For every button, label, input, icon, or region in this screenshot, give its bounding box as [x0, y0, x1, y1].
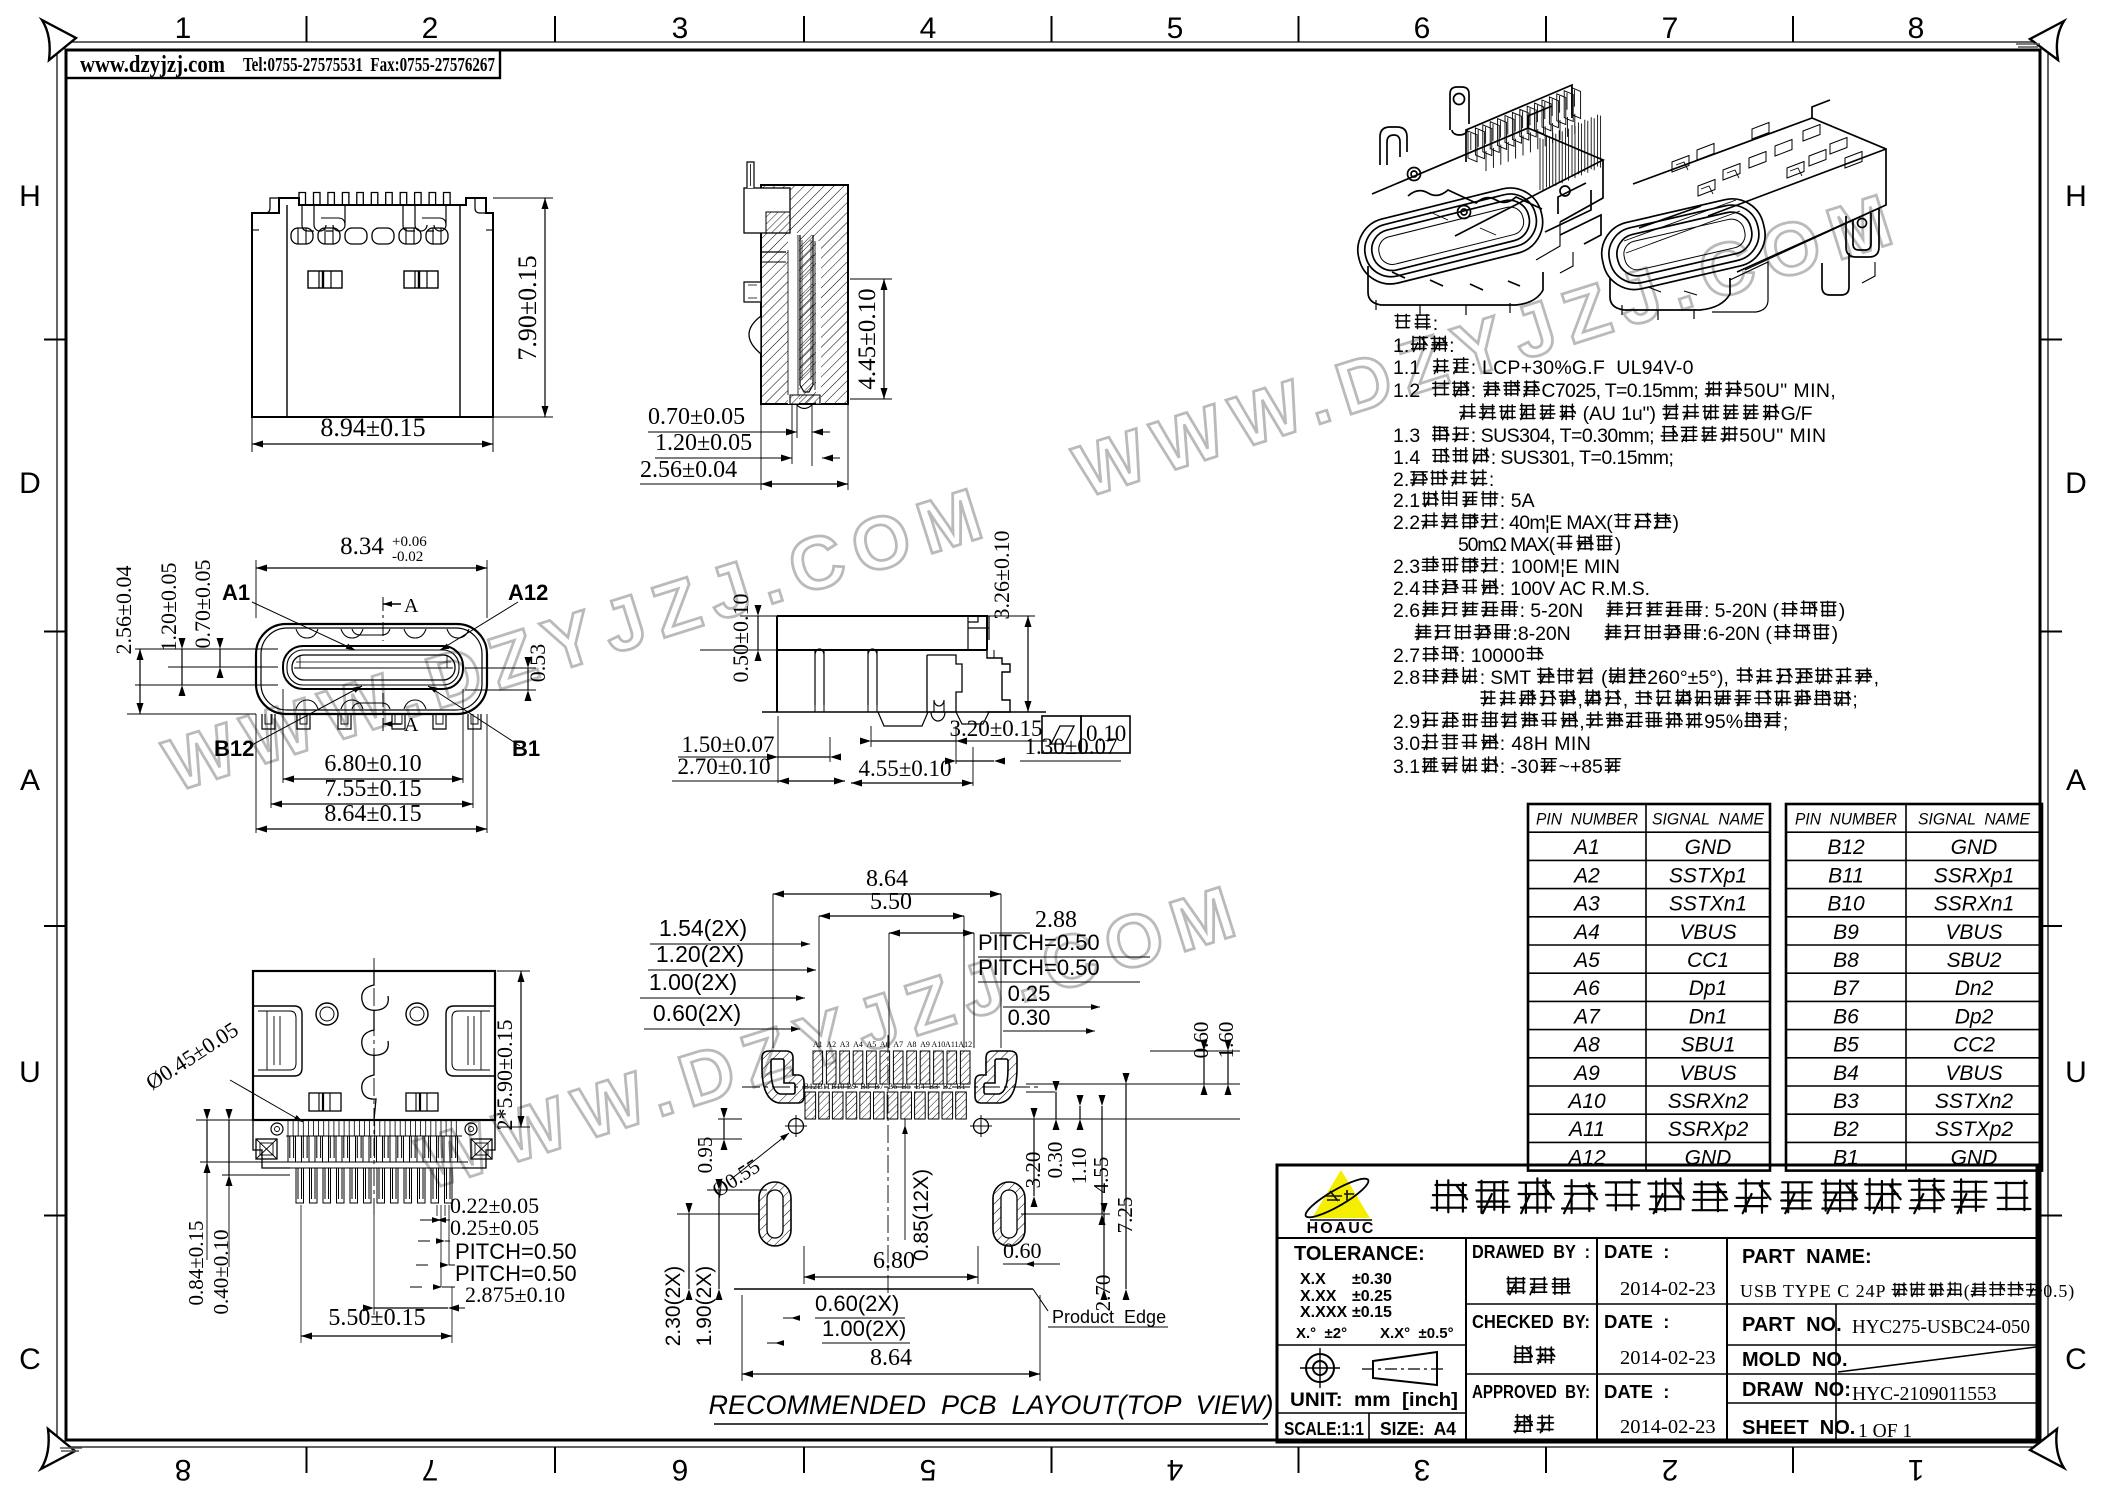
svg-text:B9: B9 [847, 1082, 856, 1091]
svg-text:0.30: 0.30 [1043, 1142, 1067, 1179]
svg-text:B12: B12 [1827, 836, 1865, 859]
svg-text:: SMT: : SMT [1480, 667, 1536, 689]
svg-text:1: 1 [1908, 1453, 1925, 1486]
svg-text:0.60(2X): 0.60(2X) [653, 1000, 741, 1026]
svg-text:1.20±0.05: 1.20±0.05 [156, 562, 181, 651]
svg-text:HYC-2109011553: HYC-2109011553 [1852, 1384, 1996, 1405]
svg-text:D: D [19, 467, 41, 500]
svg-text:B12: B12 [804, 1082, 817, 1091]
svg-text:0.30: 0.30 [1008, 1005, 1051, 1030]
svg-text:MOLD NO.: MOLD NO. [1742, 1349, 1848, 1371]
svg-text:B5: B5 [1833, 1034, 1859, 1057]
svg-text:8.34: 8.34 [340, 533, 384, 560]
svg-text:SHEET NO.: SHEET NO. [1742, 1417, 1855, 1439]
svg-text:(: ( [1596, 667, 1608, 689]
svg-text:DATE :: DATE : [1604, 1381, 1669, 1402]
svg-text:2014-02-23: 2014-02-23 [1620, 1347, 1716, 1369]
svg-text:B2: B2 [943, 1082, 952, 1091]
svg-text:B4: B4 [1833, 1062, 1859, 1085]
svg-text:): ) [1832, 623, 1839, 645]
svg-text:A1: A1 [222, 580, 250, 605]
svg-text:+0.06: +0.06 [392, 534, 427, 550]
svg-text:A9: A9 [1572, 1062, 1600, 1085]
svg-text:CC1: CC1 [1687, 949, 1729, 972]
svg-text:2.8: 2.8 [1393, 667, 1420, 689]
svg-text:3.0: 3.0 [1393, 733, 1420, 755]
svg-text::: : [1489, 469, 1494, 491]
svg-text:6: 6 [1414, 12, 1431, 45]
svg-text:2.875±0.10: 2.875±0.10 [465, 1282, 565, 1307]
svg-text:B8: B8 [860, 1082, 869, 1091]
svg-text:B6: B6 [1833, 1005, 1859, 1028]
svg-text:2.70±0.10: 2.70±0.10 [677, 754, 770, 779]
svg-text:50U" MIN: 50U" MIN [1739, 425, 1826, 447]
svg-text:A5: A5 [1572, 949, 1600, 972]
svg-text:7: 7 [1662, 12, 1679, 45]
svg-text:: 5-20N (: : 5-20N ( [1704, 600, 1780, 622]
svg-text:2*5.90±0.15: 2*5.90±0.15 [492, 1019, 517, 1130]
svg-text:SIGNAL NAME: SIGNAL NAME [1652, 809, 1765, 828]
svg-text:(AU 1u"): (AU 1u") [1577, 403, 1661, 425]
svg-text:7.55±0.15: 7.55±0.15 [324, 776, 421, 802]
svg-text:VBUS: VBUS [1945, 1062, 2002, 1085]
svg-text:1.: 1. [1393, 335, 1409, 357]
svg-text:A11: A11 [945, 1040, 958, 1049]
svg-text:TOLERANCE:: TOLERANCE: [1294, 1243, 1425, 1265]
svg-text:6.80: 6.80 [873, 1248, 915, 1274]
svg-text:4.55±0.10: 4.55±0.10 [858, 756, 951, 781]
svg-text:A4: A4 [1572, 921, 1600, 944]
svg-text:A10: A10 [932, 1040, 946, 1049]
svg-text:0.5): 0.5) [2043, 1281, 2074, 1302]
svg-text:B7: B7 [1833, 977, 1860, 1000]
svg-text:CHECKED BY:: CHECKED BY: [1472, 1311, 1590, 1332]
svg-text:,: , [1874, 667, 1879, 689]
svg-text:): ) [1839, 600, 1846, 622]
svg-text:8.64: 8.64 [870, 1345, 912, 1371]
svg-text:3: 3 [672, 12, 689, 45]
svg-text:A1: A1 [1572, 836, 1600, 859]
svg-text:VBUS: VBUS [1679, 921, 1736, 944]
svg-text:HOAUC: HOAUC [1307, 1220, 1376, 1237]
svg-text:DRAWED BY :: DRAWED BY : [1472, 1241, 1590, 1262]
svg-text:SSRXp1: SSRXp1 [1934, 864, 2015, 887]
svg-text:SBU1: SBU1 [1681, 1034, 1736, 1057]
svg-text:2014-02-23: 2014-02-23 [1620, 1416, 1716, 1438]
svg-text:PIN NUMBER: PIN NUMBER [1536, 809, 1638, 828]
svg-text:1.20±0.05: 1.20±0.05 [655, 430, 752, 456]
svg-text:4.45±0.10: 4.45±0.10 [854, 288, 881, 389]
svg-text:Dp1: Dp1 [1689, 977, 1728, 1000]
svg-text:3: 3 [1414, 1453, 1431, 1486]
svg-text:2.30(2X): 2.30(2X) [662, 1266, 685, 1347]
svg-text:5: 5 [920, 1453, 937, 1486]
svg-text:2.56±0.04: 2.56±0.04 [640, 457, 737, 483]
svg-text:1.54(2X): 1.54(2X) [659, 915, 747, 941]
svg-text:CC2: CC2 [1953, 1034, 1995, 1057]
svg-text:A7: A7 [893, 1040, 903, 1049]
svg-text:B8: B8 [1833, 949, 1859, 972]
svg-text:UNIT: mm [inch]: UNIT: mm [inch] [1290, 1390, 1458, 1411]
svg-text:PART NO.: PART NO. [1742, 1314, 1842, 1336]
svg-text:Tel:0755-27575531 Fax:0755-27: Tel:0755-27575531 Fax:0755-27576267 [243, 55, 495, 76]
svg-text:2.1: 2.1 [1393, 490, 1420, 512]
svg-text::: : [1433, 313, 1438, 335]
svg-text:A10: A10 [1566, 1090, 1606, 1113]
svg-text:): ) [1615, 534, 1622, 556]
svg-text:A8: A8 [907, 1040, 917, 1049]
svg-text:GND: GND [1951, 836, 1998, 859]
svg-text:U: U [2065, 1056, 2087, 1089]
svg-text:0.95: 0.95 [693, 1137, 717, 1174]
svg-text:1: 1 [175, 12, 192, 45]
svg-text:Dn1: Dn1 [1689, 1005, 1728, 1028]
svg-text:: SUS304, T=0.30mm;: : SUS304, T=0.30mm; [1471, 425, 1660, 447]
svg-text:A9: A9 [920, 1040, 930, 1049]
svg-text:,: , [1578, 689, 1583, 711]
svg-text:SSRXp2: SSRXp2 [1668, 1118, 1749, 1141]
svg-text:,: , [1579, 711, 1584, 733]
svg-text:B9: B9 [1833, 921, 1859, 944]
svg-text:1.3: 1.3 [1393, 425, 1431, 447]
svg-text:H: H [2065, 180, 2087, 213]
svg-text:D: D [2065, 467, 2087, 500]
svg-text:DRAW NO:: DRAW NO: [1742, 1379, 1851, 1401]
svg-text:A8: A8 [1572, 1034, 1600, 1057]
svg-text:SCALE:1:1: SCALE:1:1 [1284, 1419, 1364, 1439]
svg-text:X.X: X.X [1300, 1271, 1326, 1288]
svg-text:H: H [19, 180, 41, 213]
svg-text:4: 4 [920, 12, 937, 45]
svg-text:0.70±0.05: 0.70±0.05 [648, 404, 745, 430]
svg-text:C: C [19, 1343, 41, 1376]
svg-text:A7: A7 [1572, 1005, 1601, 1028]
svg-text:G/F: G/F [1781, 403, 1813, 425]
svg-text:5: 5 [1167, 12, 1184, 45]
svg-text:SSTXp1: SSTXp1 [1669, 864, 1747, 887]
svg-text:0.60: 0.60 [1003, 1238, 1042, 1263]
svg-text:: 100V AC R.M.S.: : 100V AC R.M.S. [1500, 578, 1650, 600]
svg-text:(: ( [1964, 1281, 1970, 1302]
svg-text:2.4: 2.4 [1393, 578, 1420, 600]
svg-text:: 5A: : 5A [1500, 490, 1535, 512]
svg-text:www.dzyjzj.com: www.dzyjzj.com [80, 52, 225, 78]
svg-text:3.20: 3.20 [1021, 1152, 1045, 1189]
svg-text:PITCH=0.50: PITCH=0.50 [978, 930, 1100, 955]
svg-text:B7: B7 [874, 1082, 883, 1091]
svg-text:SSTXp2: SSTXp2 [1935, 1118, 2014, 1141]
svg-text:5.50±0.15: 5.50±0.15 [328, 1305, 425, 1331]
svg-text:B11: B11 [1828, 864, 1864, 887]
svg-text:1.00(2X): 1.00(2X) [649, 969, 737, 995]
svg-text:A2: A2 [1572, 864, 1600, 887]
svg-text:RECOMMENDED PCB LAYOUT(TOP: RECOMMENDED PCB LAYOUT(TOP VIEW) [708, 1390, 1273, 1420]
svg-text:1.20(2X): 1.20(2X) [656, 941, 744, 967]
svg-text:;: ; [1783, 711, 1788, 733]
svg-text:: LCP+30%G.F UL94V-0: : LCP+30%G.F UL94V-0 [1471, 357, 1694, 379]
svg-text:DATE :: DATE : [1604, 1241, 1669, 1262]
svg-text:1.90(2X): 1.90(2X) [693, 1266, 716, 1347]
svg-text:SSTXn1: SSTXn1 [1669, 893, 1747, 916]
svg-text:A3: A3 [1572, 893, 1600, 916]
svg-text:8: 8 [175, 1453, 192, 1486]
svg-text:: -30: : -30 [1500, 756, 1539, 778]
svg-text:Dn2: Dn2 [1955, 977, 1994, 1000]
svg-text:95%: 95% [1704, 711, 1743, 733]
svg-text:SSTXn2: SSTXn2 [1935, 1090, 2014, 1113]
svg-text:B4: B4 [915, 1082, 924, 1091]
svg-text:B1: B1 [956, 1082, 965, 1091]
svg-text:SIGNAL NAME: SIGNAL NAME [1918, 809, 2031, 828]
svg-text::: : [1449, 335, 1454, 357]
svg-text:-0.02: -0.02 [392, 549, 423, 565]
svg-text:B10: B10 [831, 1082, 844, 1091]
svg-text:50mΩ MAX(: 50mΩ MAX( [1458, 534, 1556, 556]
svg-text:B10: B10 [1827, 893, 1865, 916]
svg-text:,: , [1623, 689, 1634, 711]
svg-text:Dp2: Dp2 [1955, 1005, 1994, 1028]
svg-text:2.2: 2.2 [1393, 512, 1420, 534]
svg-text::: : [1471, 380, 1482, 402]
svg-text:SSRXn1: SSRXn1 [1934, 893, 2015, 916]
svg-text:: 5-20N: : 5-20N [1520, 600, 1605, 622]
svg-text:A12: A12 [508, 580, 548, 605]
svg-text:8: 8 [1908, 12, 1925, 45]
svg-text:X.XX: X.XX [1300, 1288, 1337, 1305]
svg-text::6-20N (: :6-20N ( [1702, 623, 1772, 645]
svg-text:7.25: 7.25 [1113, 1197, 1137, 1234]
svg-text:5.50: 5.50 [870, 889, 912, 915]
svg-text:2.9: 2.9 [1393, 711, 1420, 733]
svg-text:0.84±0.15: 0.84±0.15 [184, 1220, 208, 1305]
svg-text:7: 7 [422, 1453, 439, 1486]
svg-text:B2: B2 [1833, 1118, 1859, 1141]
svg-text:B11: B11 [817, 1082, 830, 1091]
svg-text:U: U [19, 1056, 41, 1089]
svg-text:2.3: 2.3 [1393, 556, 1420, 578]
svg-text:B3: B3 [1833, 1090, 1859, 1113]
svg-text:2.: 2. [1393, 469, 1409, 491]
svg-text:2: 2 [422, 12, 439, 45]
svg-text:2.56±0.04: 2.56±0.04 [111, 565, 136, 654]
svg-text:6: 6 [672, 1453, 689, 1486]
svg-text:2014-02-23: 2014-02-23 [1620, 1278, 1716, 1300]
svg-text:A: A [404, 595, 419, 617]
svg-text:1.2: 1.2 [1393, 380, 1431, 402]
svg-text:A11: A11 [1567, 1118, 1605, 1141]
svg-text:8.94±0.15: 8.94±0.15 [320, 413, 425, 442]
svg-text:1.00(2X): 1.00(2X) [822, 1316, 906, 1341]
svg-text:A: A [20, 764, 40, 797]
svg-text:1.1: 1.1 [1393, 357, 1431, 379]
svg-text:2.6: 2.6 [1393, 600, 1420, 622]
svg-text:X.° ±2°: X.° ±2° [1296, 1325, 1347, 1342]
svg-text:: 40m¦E MAX(: : 40m¦E MAX( [1500, 512, 1614, 534]
svg-text:2.7: 2.7 [1393, 645, 1420, 667]
svg-text:C: C [2065, 1343, 2087, 1376]
svg-text:3.1: 3.1 [1393, 756, 1420, 778]
svg-text:A4: A4 [853, 1040, 863, 1049]
svg-text:260°±5°),: 260°±5°), [1647, 667, 1734, 689]
svg-text:2: 2 [1662, 1453, 1679, 1486]
svg-text:4: 4 [1167, 1453, 1184, 1486]
svg-text:A3: A3 [840, 1040, 850, 1049]
svg-text:0.50±0.10: 0.50±0.10 [728, 593, 753, 682]
svg-text:): ) [1673, 512, 1680, 534]
svg-text:X.X° ±0.5°: X.X° ±0.5° [1380, 1325, 1454, 1342]
svg-text:SSRXn2: SSRXn2 [1668, 1090, 1749, 1113]
svg-text:8.64±0.15: 8.64±0.15 [324, 801, 421, 827]
svg-text:B12: B12 [214, 736, 254, 761]
svg-text:APPROVED BY:: APPROVED BY: [1472, 1381, 1590, 1402]
svg-text:A1: A1 [813, 1040, 823, 1049]
svg-text:B3: B3 [929, 1082, 938, 1091]
svg-text::8-20N: :8-20N [1513, 623, 1603, 645]
svg-text:0.25±0.05: 0.25±0.05 [450, 1215, 539, 1240]
svg-text:PIN NUMBER: PIN NUMBER [1795, 809, 1897, 828]
svg-text:1.30±0.07: 1.30±0.07 [1024, 734, 1117, 759]
svg-text:3.26±0.10: 3.26±0.10 [989, 530, 1014, 619]
svg-text:USB TYPE C 24P: USB TYPE C 24P [1740, 1281, 1890, 1301]
svg-text:4.55: 4.55 [1089, 1157, 1113, 1194]
svg-text:VBUS: VBUS [1945, 921, 2002, 944]
svg-text:1 OF 1: 1 OF 1 [1858, 1421, 1912, 1442]
svg-text:6.80±0.10: 6.80±0.10 [324, 751, 421, 777]
svg-text:50U" MIN,: 50U" MIN, [1743, 380, 1836, 402]
svg-text:X.XXX: X.XXX [1300, 1304, 1347, 1321]
svg-text:: 100M¦E MIN: : 100M¦E MIN [1500, 556, 1620, 578]
svg-text:1.4: 1.4 [1393, 447, 1431, 469]
svg-text:A6: A6 [1572, 977, 1600, 1000]
svg-text:7.90±0.15: 7.90±0.15 [513, 255, 542, 360]
svg-text:SIZE: A4: SIZE: A4 [1380, 1419, 1456, 1439]
svg-text:0.60(2X): 0.60(2X) [815, 1291, 899, 1316]
svg-text:PITCH=0.50: PITCH=0.50 [978, 955, 1100, 980]
svg-text:A12: A12 [958, 1040, 972, 1049]
svg-text:A: A [2066, 764, 2086, 797]
svg-text:VBUS: VBUS [1679, 1062, 1736, 1085]
svg-text:C7025, T=0.15mm;: C7025, T=0.15mm; [1541, 380, 1703, 402]
svg-text:A: A [404, 714, 419, 736]
svg-text:: 10000: : 10000 [1460, 645, 1525, 667]
svg-text:1.10: 1.10 [1067, 1148, 1091, 1185]
svg-text:0.70±0.05: 0.70±0.05 [190, 559, 215, 648]
svg-text:B1: B1 [512, 736, 540, 761]
svg-text:A5: A5 [867, 1040, 877, 1049]
svg-text:PART NAME:: PART NAME: [1742, 1246, 1872, 1268]
svg-text:DATE :: DATE : [1604, 1311, 1669, 1332]
svg-text:GND: GND [1685, 836, 1732, 859]
svg-text:~+85: ~+85 [1559, 756, 1603, 778]
svg-text:B5: B5 [902, 1082, 911, 1091]
svg-text:B6: B6 [888, 1082, 897, 1091]
svg-text:±0.30: ±0.30 [1352, 1271, 1392, 1288]
svg-text:: 48H MIN: : 48H MIN [1500, 733, 1591, 755]
svg-text:±0.15: ±0.15 [1352, 1304, 1392, 1321]
svg-text:SBU2: SBU2 [1947, 949, 2002, 972]
svg-text:;: ; [1852, 689, 1857, 711]
svg-text:: SUS301, T=0.15mm;: : SUS301, T=0.15mm; [1491, 447, 1674, 469]
svg-text:A2: A2 [826, 1040, 836, 1049]
svg-text:±0.25: ±0.25 [1352, 1288, 1392, 1305]
svg-text:0.25: 0.25 [1008, 981, 1051, 1006]
svg-text:HYC275-USBC24-050: HYC275-USBC24-050 [1852, 1317, 2030, 1338]
